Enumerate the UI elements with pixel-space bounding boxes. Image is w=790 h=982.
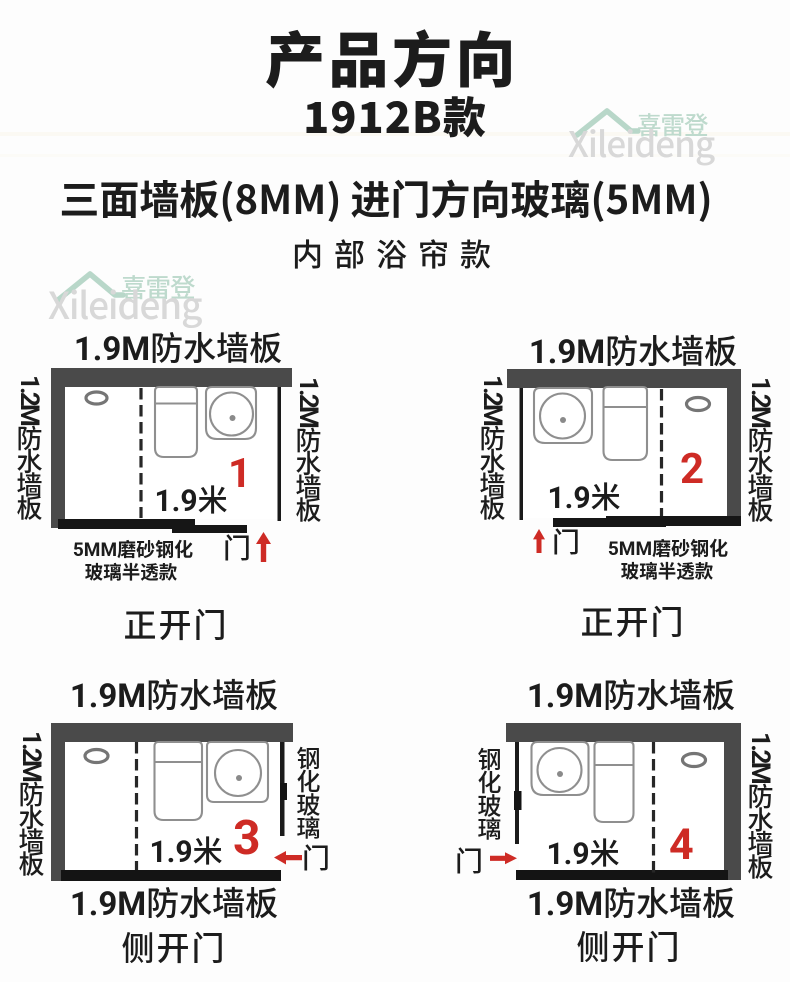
svg-text:Xileideng: Xileideng — [568, 117, 715, 168]
